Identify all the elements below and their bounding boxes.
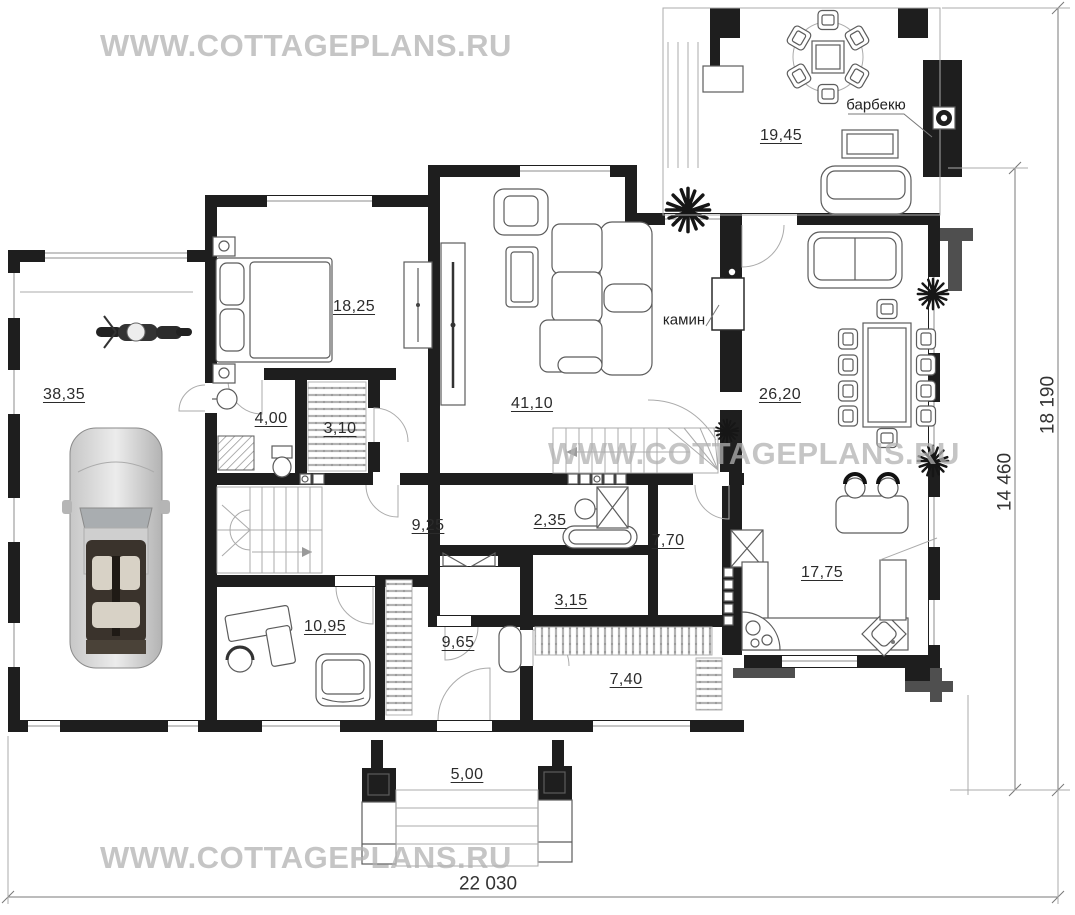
bathroom-small-fixtures — [212, 389, 292, 477]
coffee-table — [506, 247, 538, 307]
dimension-overall-width: 22 030 — [459, 875, 517, 894]
fireplace — [712, 266, 744, 330]
room-area-porch: 5,00 — [451, 767, 484, 783]
barbecue-label: барбекю — [846, 98, 906, 113]
tv-unit — [441, 243, 465, 405]
room-area-wardrobe: 7,40 — [610, 672, 643, 688]
room-area-closet: 3,10 — [324, 421, 357, 437]
room-area-living-room: 41,10 — [511, 396, 553, 412]
room-area-terrace: 19,45 — [760, 128, 802, 144]
dining-table — [839, 300, 936, 448]
room-area-study: 10,95 — [304, 619, 346, 635]
barbecue-unit — [933, 107, 955, 129]
room-area-bathroom-small: 4,00 — [255, 411, 288, 427]
floor-plan: WWW.COTTAGEPLANS.RU WWW.COTTAGEPLANS.RU … — [0, 0, 1075, 915]
room-area-corridor: 3,15 — [555, 593, 588, 609]
dresser — [404, 262, 432, 348]
room-area-dining-room: 26,20 — [759, 387, 801, 403]
study-furniture — [225, 605, 370, 706]
room-area-kitchen: 17,75 — [801, 565, 843, 581]
watermark-middle: WWW.COTTAGEPLANS.RU — [548, 436, 960, 472]
sectional-sofa — [540, 222, 652, 375]
car — [62, 428, 170, 668]
dimension-house-depth: 14 460 — [996, 453, 1015, 511]
bed — [216, 258, 332, 362]
room-area-pantry: 7,70 — [652, 533, 685, 549]
motorcycle — [96, 316, 192, 348]
dimension-overall-depth: 18 190 — [1039, 376, 1058, 434]
hall-cabinet — [499, 626, 521, 672]
watermark-top: WWW.COTTAGEPLANS.RU — [100, 28, 512, 64]
room-area-hall: 9,25 — [412, 518, 445, 534]
fireplace-label: камин — [663, 313, 705, 328]
dining-sofa — [808, 232, 902, 288]
room-area-garage: 38,35 — [43, 387, 85, 403]
room-area-bathroom: 2,35 — [534, 513, 567, 529]
room-area-bedroom: 18,25 — [333, 299, 375, 315]
bathroom-fixtures — [563, 487, 637, 548]
watermark-bottom: WWW.COTTAGEPLANS.RU — [100, 840, 512, 876]
staircase-hall — [217, 487, 322, 573]
room-area-entry-hall: 9,65 — [442, 635, 475, 651]
armchair — [494, 189, 548, 235]
